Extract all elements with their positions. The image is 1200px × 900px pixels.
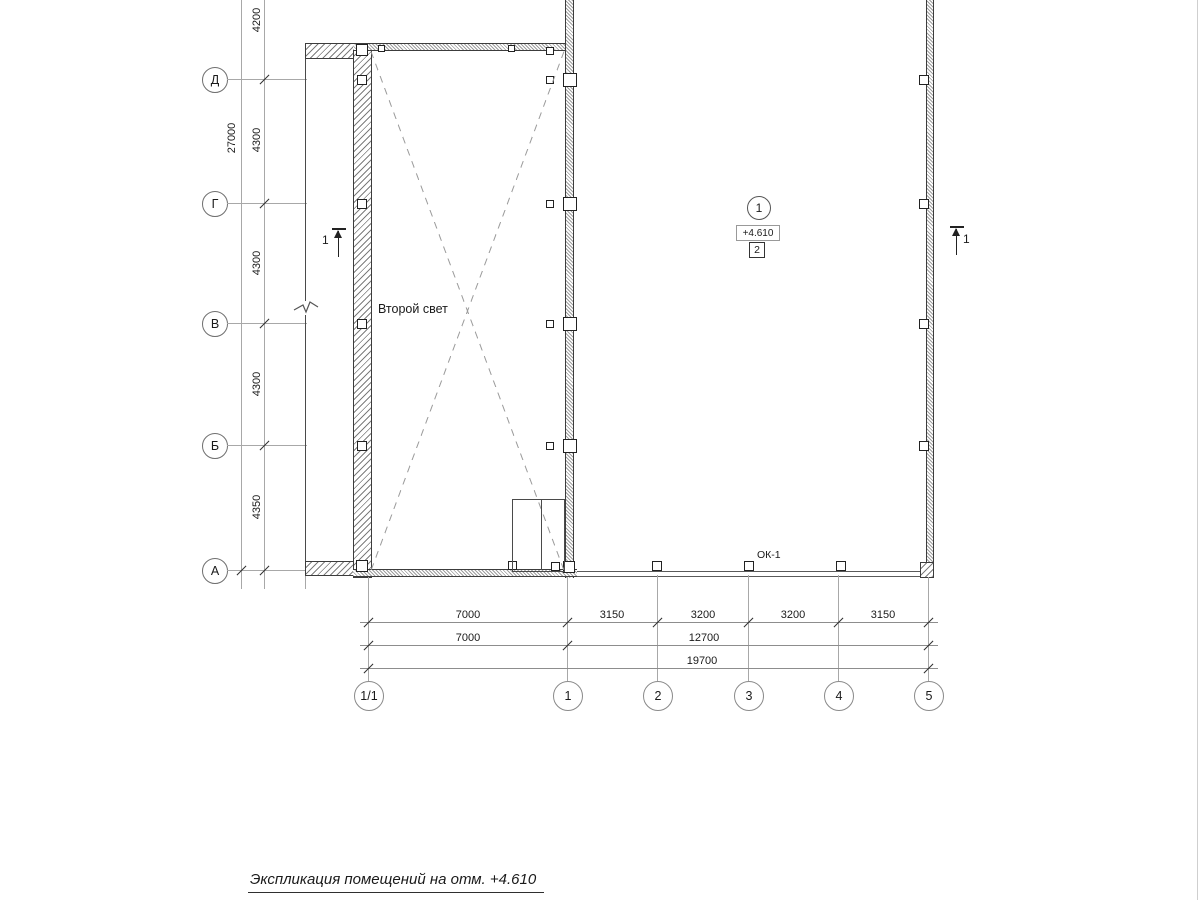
dim-value-4200: 4200 — [249, 0, 265, 60]
door-opening — [512, 499, 565, 572]
room-number-box: 2 — [749, 242, 765, 258]
column-marker — [563, 317, 577, 331]
column-marker — [546, 442, 554, 450]
door-leaf-line — [541, 499, 542, 570]
column-marker — [744, 561, 754, 571]
dim-value-4300: 4300 — [249, 223, 265, 303]
dim-value-4300: 4300 — [249, 344, 265, 424]
axis-label: 1 — [565, 689, 572, 703]
room-axis-number: 1 — [756, 201, 763, 215]
column-marker — [546, 47, 554, 55]
column-marker — [546, 320, 554, 328]
axis-label: 4 — [836, 689, 843, 703]
axis-label: Д — [211, 73, 219, 87]
wall-stub-bottom — [305, 561, 355, 576]
window-type-label: ОК-1 — [757, 549, 781, 561]
axis-bubble-1: 1 — [553, 681, 583, 711]
column-marker — [919, 199, 929, 209]
column-marker — [357, 441, 367, 451]
wall-right — [926, 0, 934, 578]
dim-value-27000: 27000 — [224, 98, 240, 178]
extension-line — [748, 575, 749, 681]
wall-top — [353, 43, 573, 51]
wall-corner-block — [920, 562, 934, 578]
dim-value-4300: 4300 — [249, 100, 265, 180]
facade-outline — [305, 315, 306, 562]
glazing-line — [577, 571, 926, 577]
dim-value-3150: 3150 — [871, 609, 895, 621]
dim-value-7000: 7000 — [456, 609, 480, 621]
section-arrow-icon — [334, 230, 342, 238]
column-marker — [563, 197, 577, 211]
axis-label: В — [211, 317, 219, 331]
extension-line — [838, 575, 839, 681]
room-number: 2 — [754, 244, 760, 256]
column-marker — [919, 75, 929, 85]
axis-line — [227, 323, 307, 324]
axis-line — [227, 79, 307, 80]
extension-line — [567, 577, 568, 681]
drawing-title: Экспликация помещений на отм. +4.610 — [248, 871, 544, 893]
section-arrow-icon — [952, 228, 960, 236]
column-marker — [378, 45, 385, 52]
column-marker — [546, 200, 554, 208]
axis-bubble-b: Б — [202, 433, 228, 459]
paper-edge — [1197, 0, 1198, 900]
axis-bubble-5: 5 — [914, 681, 944, 711]
section-number: 1 — [322, 233, 329, 247]
axis-label: Б — [211, 439, 219, 453]
wall-left — [353, 43, 372, 578]
column-marker — [357, 199, 367, 209]
axis-label: 2 — [655, 689, 662, 703]
room-axis-bubble: 1 — [747, 196, 771, 220]
column-marker — [357, 75, 367, 85]
dim-value-19700: 19700 — [687, 655, 718, 667]
dim-value-3200: 3200 — [781, 609, 805, 621]
column-marker — [919, 319, 929, 329]
axis-line — [227, 445, 307, 446]
column-marker — [919, 441, 929, 451]
axis-label: 1/1 — [360, 689, 377, 703]
facade-outline — [305, 57, 306, 301]
extension-line — [368, 577, 369, 681]
dim-value-3150: 3150 — [600, 609, 624, 621]
column-marker — [836, 561, 846, 571]
level-value: +4.610 — [743, 228, 774, 239]
extension-line — [305, 575, 306, 589]
axis-bubble-3: 3 — [734, 681, 764, 711]
column-marker — [356, 44, 368, 56]
column-marker — [508, 45, 515, 52]
axis-bubble-2: 2 — [643, 681, 673, 711]
axis-label: 3 — [746, 689, 753, 703]
axis-bubble-a: А — [202, 558, 228, 584]
extension-line — [928, 577, 929, 681]
void-label: Второй свет — [378, 302, 448, 316]
dim-row-line — [360, 645, 938, 646]
column-marker — [356, 560, 368, 572]
axis-bubble-g: Г — [202, 191, 228, 217]
dim-value-3200: 3200 — [691, 609, 715, 621]
floor-plan-drawing: Д Г В Б А 4200 4300 4300 4300 4350 27000 — [0, 0, 1200, 900]
dim-row-line — [360, 622, 938, 623]
dim-value-4350: 4350 — [249, 467, 265, 547]
wall-stub-top — [305, 43, 355, 59]
axis-label: А — [211, 564, 219, 578]
axis-line — [227, 203, 307, 204]
break-symbol — [293, 299, 319, 317]
axis-bubble-1-1: 1/1 — [354, 681, 384, 711]
column-marker — [357, 319, 367, 329]
axis-label: Г — [212, 197, 219, 211]
dim-value-7000: 7000 — [456, 632, 480, 644]
dim-value-12700: 12700 — [689, 632, 720, 644]
section-number: 1 — [963, 232, 970, 246]
dim-line-outer — [241, 0, 242, 589]
column-marker — [563, 73, 577, 87]
axis-bubble-4: 4 — [824, 681, 854, 711]
axis-label: 5 — [926, 689, 933, 703]
column-marker — [652, 561, 662, 571]
level-mark: +4.610 — [736, 225, 780, 241]
column-marker — [563, 439, 577, 453]
dim-row-line — [360, 668, 938, 669]
axis-bubble-d: Д — [202, 67, 228, 93]
extension-line — [657, 575, 658, 681]
axis-bubble-v: В — [202, 311, 228, 337]
